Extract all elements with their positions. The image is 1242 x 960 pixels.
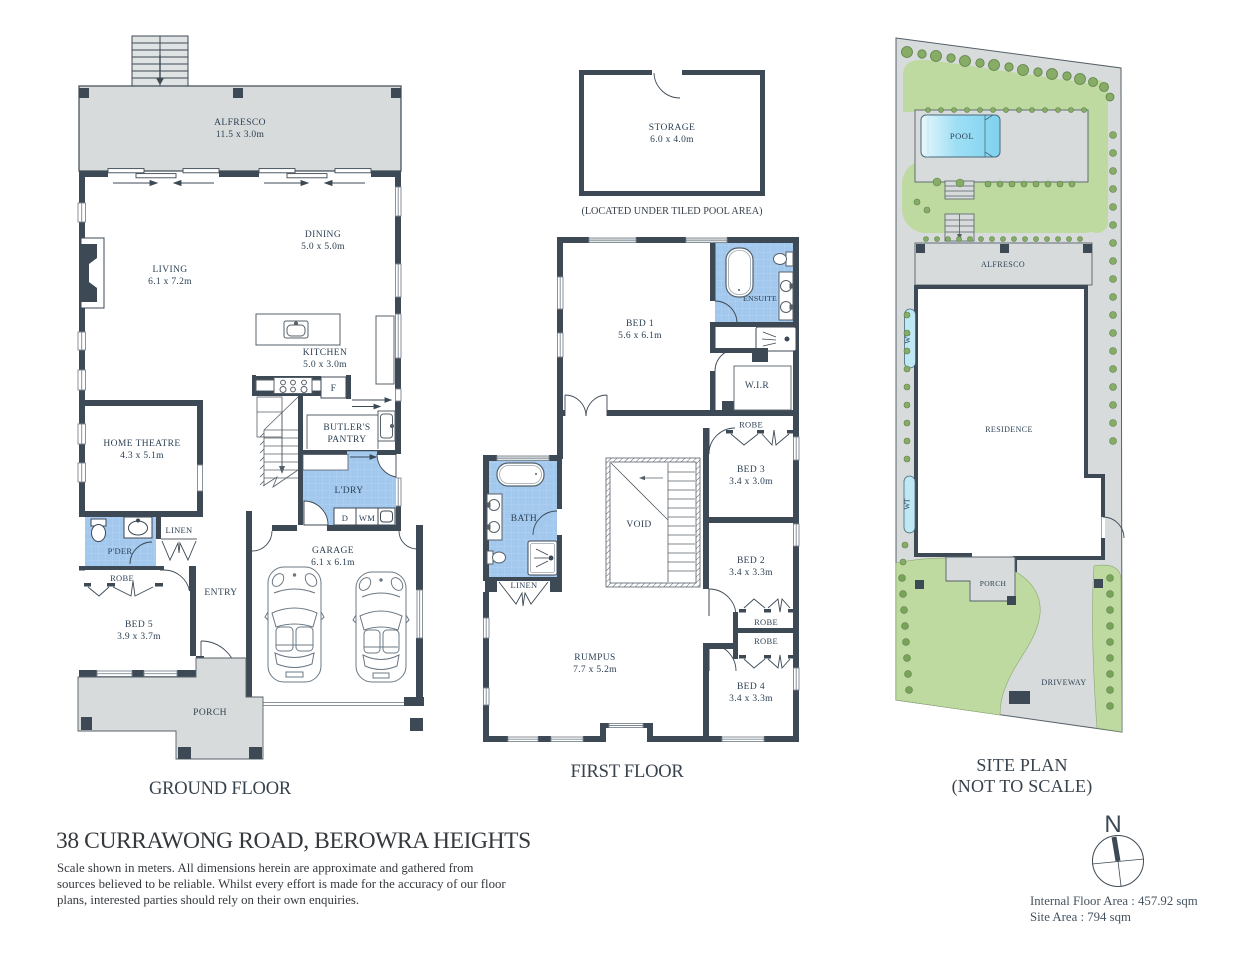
svg-text:ALFRESCO: ALFRESCO xyxy=(981,260,1025,269)
svg-text:PORCH: PORCH xyxy=(193,708,227,718)
svg-text:11.5 x 3.0m: 11.5 x 3.0m xyxy=(216,130,265,140)
svg-text:D: D xyxy=(342,513,348,523)
svg-text:Site Area : 794 sqm: Site Area : 794 sqm xyxy=(1030,910,1131,924)
svg-text:6.1 x 6.1m: 6.1 x 6.1m xyxy=(311,558,355,568)
svg-text:GARAGE: GARAGE xyxy=(312,546,354,556)
svg-text:F: F xyxy=(331,384,337,394)
svg-text:4.3 x 5.1m: 4.3 x 5.1m xyxy=(120,451,164,461)
svg-text:Internal Floor Area : 457.92 s: Internal Floor Area : 457.92 sqm xyxy=(1030,894,1198,908)
svg-text:DRIVEWAY: DRIVEWAY xyxy=(1041,678,1086,687)
svg-text:L'DRY: L'DRY xyxy=(334,486,363,496)
svg-text:RUMPUS: RUMPUS xyxy=(574,653,615,663)
svg-text:6.1 x 7.2m: 6.1 x 7.2m xyxy=(148,277,192,287)
svg-text:7.7 x 5.2m: 7.7 x 5.2m xyxy=(573,665,617,675)
svg-text:BED 4: BED 4 xyxy=(737,682,765,692)
svg-text:3.4 x 3.3m: 3.4 x 3.3m xyxy=(729,568,773,578)
svg-text:ROBE: ROBE xyxy=(110,573,134,583)
svg-text:ENTRY: ENTRY xyxy=(204,588,237,598)
svg-text:VOID: VOID xyxy=(626,520,651,530)
svg-text:LINEN: LINEN xyxy=(166,525,193,535)
svg-text:3.4 x 3.0m: 3.4 x 3.0m xyxy=(729,477,773,487)
svg-text:5.0 x 3.0m: 5.0 x 3.0m xyxy=(303,360,347,370)
svg-text:ROBE: ROBE xyxy=(739,420,763,430)
svg-text:WM: WM xyxy=(359,513,375,523)
svg-text:(NOT TO SCALE): (NOT TO SCALE) xyxy=(952,776,1093,797)
svg-text:3.4 x 3.3m: 3.4 x 3.3m xyxy=(729,694,773,704)
svg-text:6.0 x 4.0m: 6.0 x 4.0m xyxy=(650,135,694,145)
svg-text:ALFRESCO: ALFRESCO xyxy=(214,118,266,128)
svg-text:PORCH: PORCH xyxy=(980,579,1007,588)
svg-text:WT: WT xyxy=(904,498,912,510)
svg-text:W.I.R: W.I.R xyxy=(745,381,770,391)
svg-text:BUTLER'S: BUTLER'S xyxy=(323,423,370,433)
svg-text:3.9 x 3.7m: 3.9 x 3.7m xyxy=(117,632,161,642)
svg-text:sources believed to be reliabl: sources believed to be reliable. Whilst … xyxy=(57,877,506,891)
svg-text:plans, interested parties shou: plans, interested parties should rely on… xyxy=(57,893,359,907)
svg-text:LINEN: LINEN xyxy=(511,580,538,590)
svg-text:POOL: POOL xyxy=(950,131,974,141)
svg-text:SITE PLAN: SITE PLAN xyxy=(976,755,1067,775)
svg-text:BED 2: BED 2 xyxy=(737,556,765,566)
svg-text:5.6 x 6.1m: 5.6 x 6.1m xyxy=(618,331,662,341)
svg-text:N: N xyxy=(1104,811,1121,838)
svg-text:BED 3: BED 3 xyxy=(737,465,765,475)
svg-text:DINING: DINING xyxy=(305,230,341,240)
svg-text:ROBE: ROBE xyxy=(754,617,778,627)
svg-text:RESIDENCE: RESIDENCE xyxy=(985,425,1033,434)
svg-text:5.0 x 5.0m: 5.0 x 5.0m xyxy=(301,242,345,252)
svg-text:GROUND FLOOR: GROUND FLOOR xyxy=(149,779,292,799)
svg-text:FIRST FLOOR: FIRST FLOOR xyxy=(570,762,684,782)
svg-text:38 CURRAWONG ROAD, BEROWRA HEI: 38 CURRAWONG ROAD, BEROWRA HEIGHTS xyxy=(56,828,531,854)
svg-text:ROBE: ROBE xyxy=(754,636,778,646)
svg-text:STORAGE: STORAGE xyxy=(649,123,695,133)
svg-text:LIVING: LIVING xyxy=(152,265,187,275)
svg-text:Scale shown in meters. All dim: Scale shown in meters. All dimensions he… xyxy=(57,861,474,875)
svg-text:P'DER: P'DER xyxy=(108,546,133,556)
svg-text:BED 5: BED 5 xyxy=(125,620,153,630)
svg-text:(LOCATED UNDER TILED POOL AREA: (LOCATED UNDER TILED POOL AREA) xyxy=(581,206,762,217)
svg-text:KITCHEN: KITCHEN xyxy=(303,348,348,358)
svg-text:PANTRY: PANTRY xyxy=(327,435,366,445)
svg-text:BATH: BATH xyxy=(511,514,537,524)
svg-text:HOME THEATRE: HOME THEATRE xyxy=(103,439,180,449)
svg-text:BED 1: BED 1 xyxy=(626,319,654,329)
